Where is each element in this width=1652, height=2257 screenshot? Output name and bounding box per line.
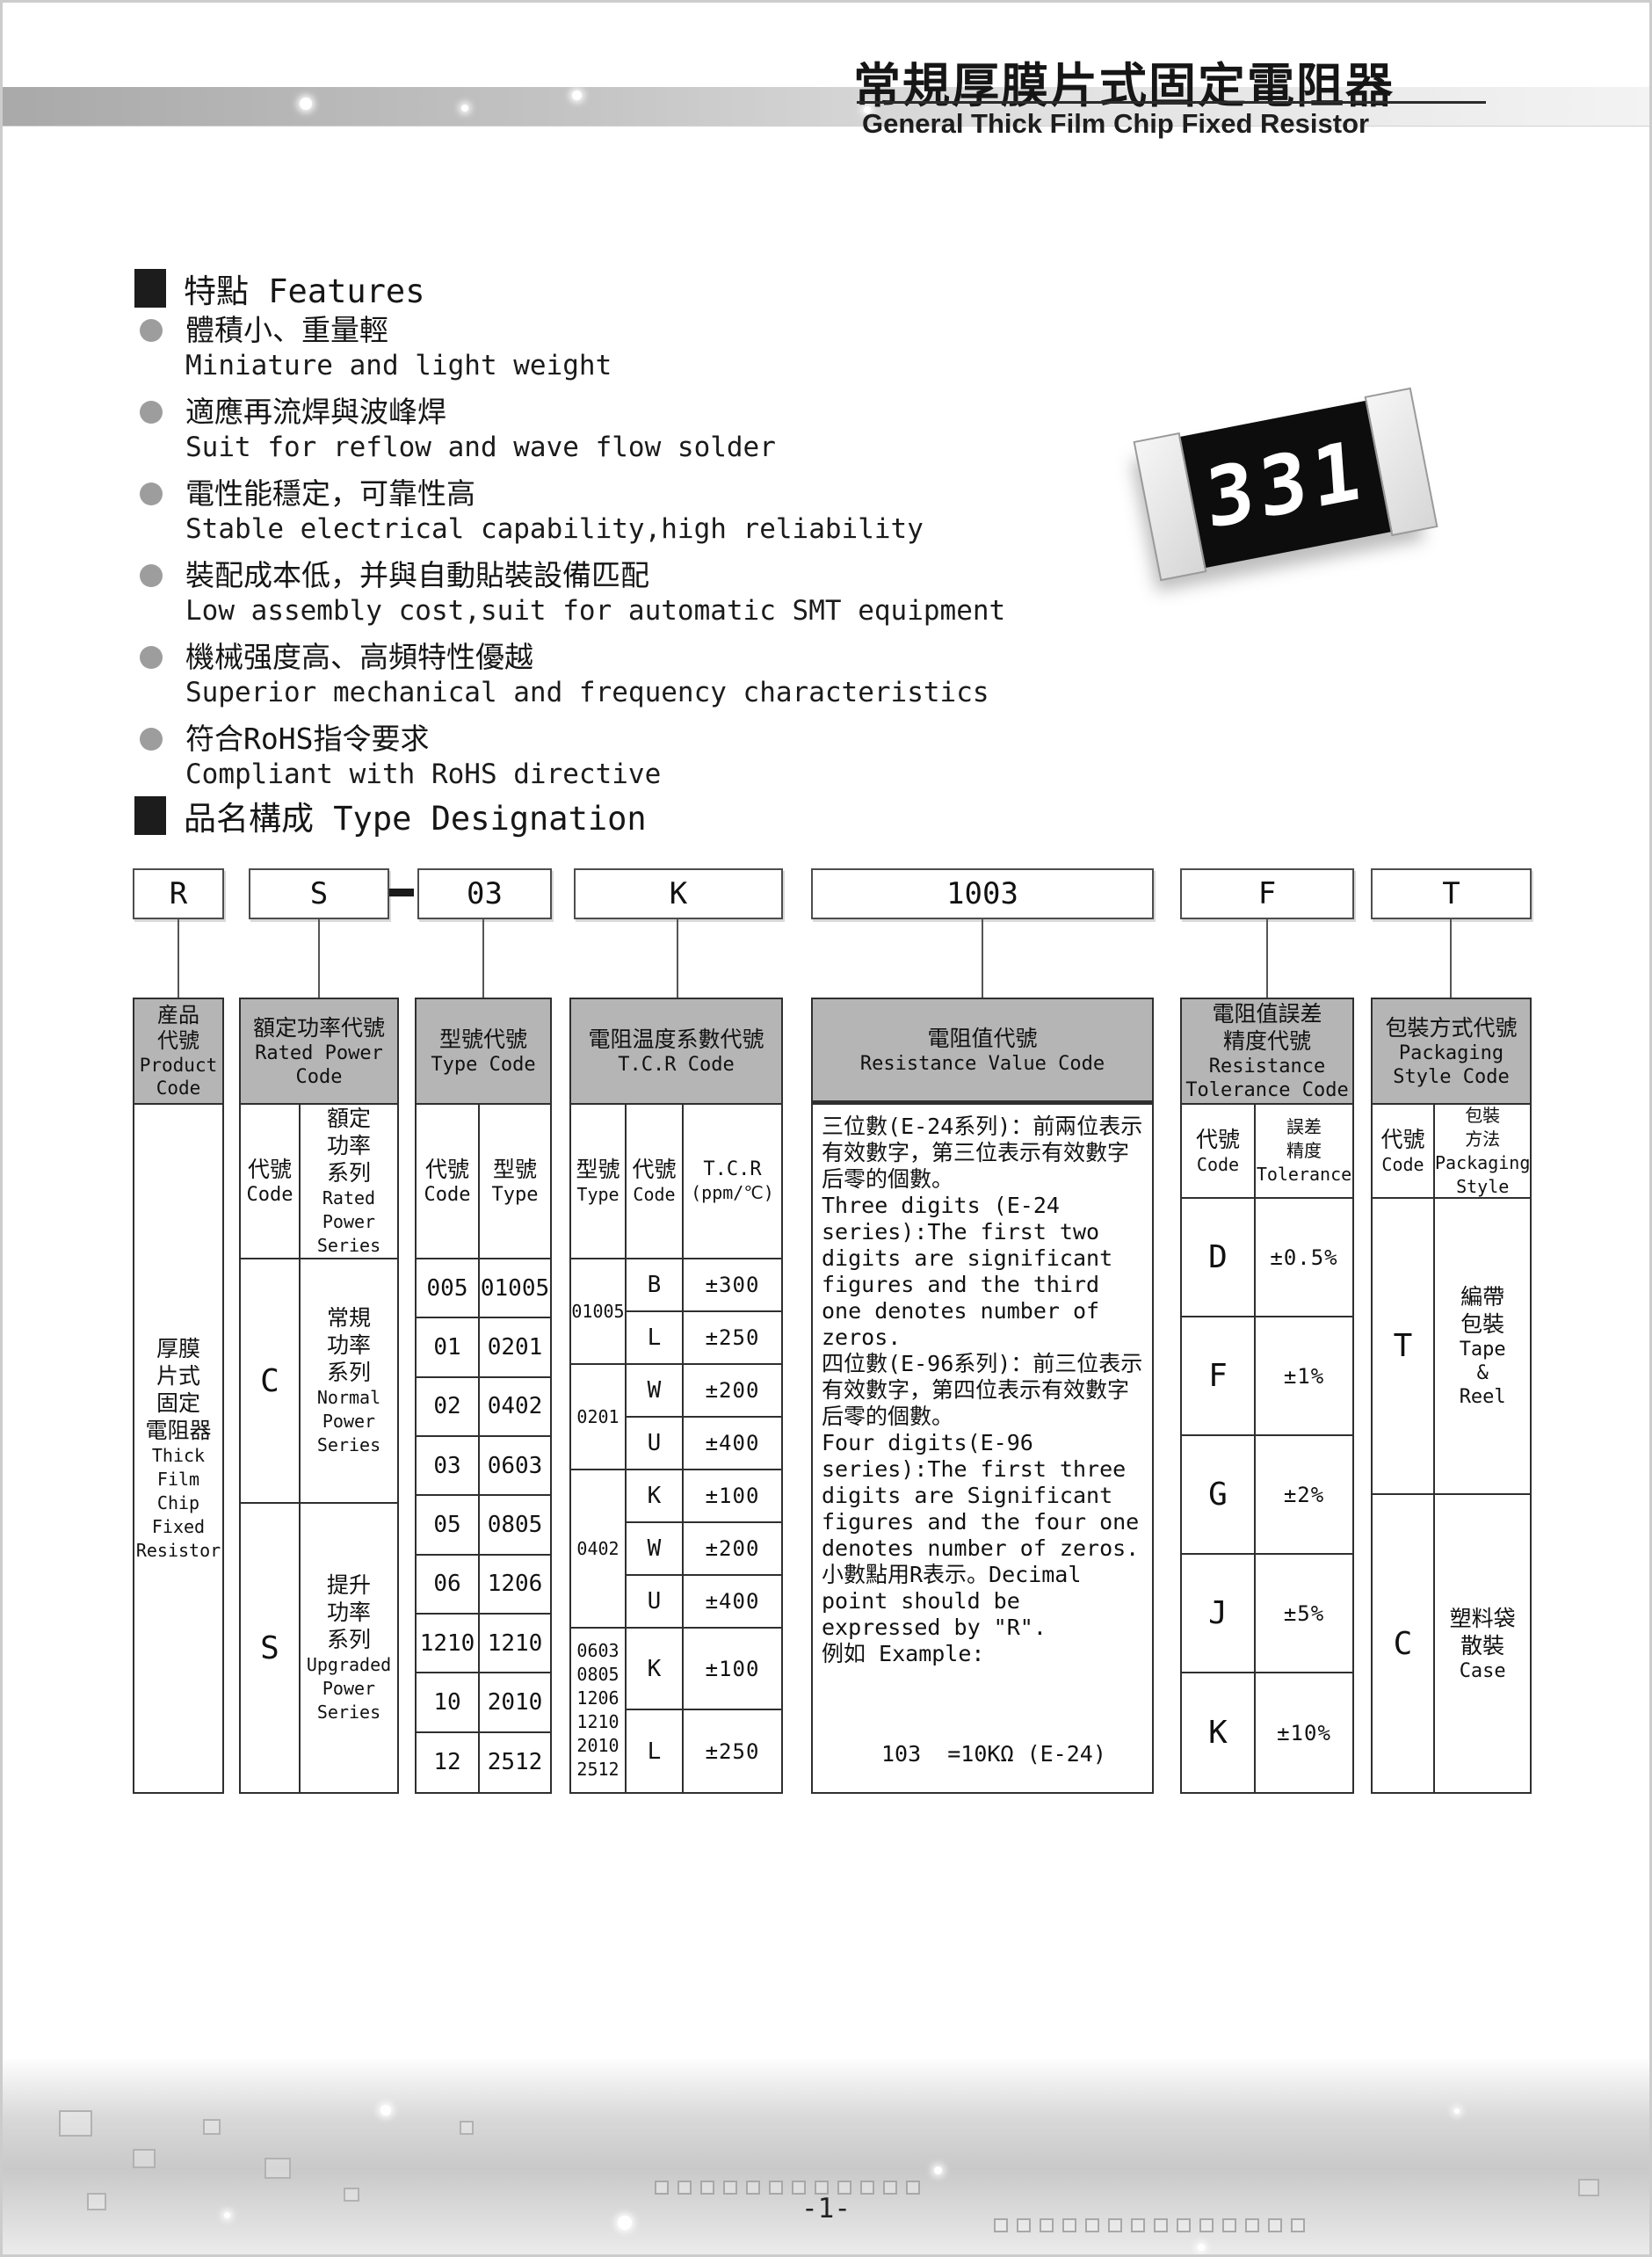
code-box-packaging: T (1371, 868, 1532, 919)
tcr-value-cell: ±400 (684, 1418, 781, 1470)
tcr-header: 電阻温度系數代號 T.C.R Code (571, 999, 781, 1105)
subheader-style: 包裝 方法 Packaging Style (1435, 1105, 1530, 1199)
value-paragraph: Four digits(E-96 series):The first three… (822, 1430, 1143, 1562)
datasheet-page: 常規厚膜片式固定電阻器 General Thick Film Chip Fixe… (0, 0, 1652, 2257)
value-paragraph: Three digits (E-24 series):The first two… (822, 1193, 1143, 1351)
header-line: Packaging (1399, 1041, 1503, 1065)
tcr-code-cell: K (627, 1470, 684, 1523)
feature-zh: 裝配成本低，并與自動貼裝設備匹配 (185, 557, 1154, 593)
cell-line: Code (1197, 1153, 1239, 1177)
cell-line: 0603 (576, 1639, 619, 1663)
page-subtitle: General Thick Film Chip Fixed Resistor (862, 108, 1369, 140)
tolerance-code-cell: D (1182, 1199, 1256, 1317)
cell-line: Thick (152, 1444, 205, 1468)
cell-line: 提升 (327, 1571, 371, 1599)
tcr-grid: 型號 Type 代號 Code T.C.R (ppm/℃) 01005 B ±3… (571, 1105, 781, 1792)
connector-line (1450, 919, 1452, 998)
cell-line: Type (576, 1183, 619, 1207)
type-size-cell: 0603 (480, 1437, 550, 1496)
tcr-value-cell: ±250 (684, 1312, 781, 1365)
tcr-value-cell: ±100 (684, 1470, 781, 1523)
resistor-photo: 331 (1141, 381, 1431, 591)
header-line: 電阻温度系數代號 (588, 1026, 764, 1053)
chip-body: 331 (1139, 393, 1431, 576)
features-heading: 特點 Features (134, 265, 424, 312)
bullet-icon (140, 728, 163, 751)
type-size-cell: 1210 (480, 1615, 550, 1673)
connector-line (318, 919, 320, 998)
features-list: 體積小、重量輕 Miniature and light weight 適應再流焊… (134, 312, 1154, 802)
sparkle-dot (461, 105, 468, 112)
cell-line: Series (317, 1433, 380, 1457)
cell-line: 代號 (425, 1156, 469, 1183)
table-column-tcr: 電阻温度系數代號 T.C.R Code 型號 Type 代號 Code T.C.… (569, 998, 783, 1794)
tolerance-value-cell: ±0.5% (1256, 1199, 1352, 1317)
tcr-value-cell: ±250 (684, 1710, 781, 1792)
chip-end-cap (1365, 388, 1438, 536)
sparkle-dot (1454, 2108, 1460, 2114)
value-paragraph: 小數點用R表示。Decimal point should be expresse… (822, 1562, 1143, 1641)
feature-en: Superior mechanical and frequency charac… (185, 675, 1154, 710)
cell-line: 系列 (327, 1626, 371, 1653)
cell-line: Series (317, 1234, 380, 1258)
features-heading-label: 特點 Features (184, 265, 424, 312)
cell-line: 功率 (327, 1332, 371, 1359)
feature-zh: 電性能穩定，可靠性高 (185, 475, 1154, 512)
type-code-cell: 005 (417, 1259, 480, 1318)
rated-power-header: 額定功率代號 Rated Power Code (241, 999, 397, 1105)
subheader-code: 代號 Code (1373, 1105, 1435, 1199)
cell-line: Fixed (152, 1515, 205, 1539)
subheader-type: 型號 Type (480, 1105, 550, 1259)
cell-line: (ppm/℃) (691, 1181, 774, 1205)
subheader-series: 額定 功率 系列 Rated Power Series (301, 1105, 397, 1259)
cell-line: Power (322, 1677, 375, 1701)
header-line: Code (156, 1077, 201, 1099)
feature-en: Low assembly cost,suit for automatic SMT… (185, 593, 1154, 628)
cell-line: Code (424, 1183, 471, 1207)
feature-zh: 機械强度高、高頻特性優越 (185, 639, 1154, 675)
tcr-type-group: 01005 (571, 1259, 627, 1365)
feature-en: Miniature and light weight (185, 348, 1154, 383)
tolerance-value-cell: ±5% (1256, 1555, 1352, 1673)
decor-rect (460, 2121, 474, 2135)
cell-line: 2010 (576, 1734, 619, 1758)
chip-end-cap (1134, 432, 1207, 581)
rated-power-grid: 代號 Code 額定 功率 系列 Rated Power Series C 常規… (241, 1105, 397, 1792)
type-code-cell: 10 (417, 1673, 480, 1732)
cell-line: 包裝 (1465, 1104, 1500, 1128)
code-box-product: R (133, 868, 224, 919)
cell-line: Style (1456, 1175, 1509, 1199)
type-size-cell: 01005 (480, 1259, 550, 1318)
cell-line: 代號 (632, 1156, 676, 1183)
header-line: Product (140, 1054, 218, 1077)
feature-en: Stable electrical capability,high reliab… (185, 512, 1154, 547)
cell-line: 1210 (576, 1710, 619, 1734)
tcr-code-cell: U (627, 1576, 684, 1629)
cell-line: Series (317, 1701, 380, 1724)
type-size-cell: 2010 (480, 1673, 550, 1732)
connector-line (1266, 919, 1268, 998)
header-line: 産品 (157, 1003, 199, 1028)
cell-line: Tolerance (1257, 1163, 1351, 1187)
cell-line: & (1477, 1361, 1489, 1385)
footer-gradient-band (3, 2059, 1649, 2257)
type-code-cell: 03 (417, 1437, 480, 1496)
cell-line: 代號 (1196, 1126, 1240, 1153)
cell-line: Chip (157, 1491, 199, 1515)
header-line: 額定功率代號 (253, 1014, 385, 1041)
cell-line: Rated (322, 1187, 375, 1210)
type-header: 型號代號 Type Code (417, 999, 550, 1105)
code-box-power: S (249, 868, 389, 919)
decor-rect (264, 2158, 291, 2179)
subheader-type: 型號 Type (571, 1105, 627, 1259)
cell-line: Resistor (136, 1539, 221, 1563)
section-square-icon (134, 796, 166, 835)
subheader-tcr: T.C.R (ppm/℃) (684, 1105, 781, 1259)
type-code-cell: 06 (417, 1556, 480, 1615)
decor-rect (203, 2119, 221, 2135)
resistor-marking: 331 (1203, 422, 1368, 548)
tolerance-header: 電阻值誤差 精度代號 Resistance Tolerance Code (1182, 999, 1352, 1105)
value-example-line: 103 =10KΩ (E-24) (881, 1739, 1143, 1768)
tcr-code-cell: U (627, 1418, 684, 1470)
tcr-value-cell: ±400 (684, 1576, 781, 1629)
power-code-cell: C (241, 1259, 301, 1504)
tcr-value-cell: ±200 (684, 1365, 781, 1418)
cell-line: 誤差 (1286, 1115, 1322, 1139)
cell-line: 散裝 (1460, 1632, 1504, 1659)
sparkle-dot (934, 2166, 942, 2174)
tolerance-code-cell: G (1182, 1436, 1256, 1555)
power-series-cell: 常規 功率 系列 Normal Power Series (301, 1259, 397, 1504)
feature-item: 體積小、重量輕 Miniature and light weight (134, 312, 1154, 383)
header-line: Type Code (431, 1053, 535, 1077)
subheader-tolerance: 誤差 精度 Tolerance (1256, 1105, 1352, 1199)
value-examples: 103 =10KΩ (E-24) 1003=100KΩ(E-96) 1R0 =1… (822, 1681, 1143, 1788)
cell-line: 常規 (327, 1304, 371, 1332)
tcr-code-cell: W (627, 1365, 684, 1418)
type-size-cell: 2512 (480, 1733, 550, 1792)
cell-line: 1206 (576, 1687, 619, 1710)
table-column-product: 産品 代號 Product Code 厚膜 片式 固定 電阻器 Thick Fi… (133, 998, 224, 1794)
cell-line: 厚膜 (156, 1335, 200, 1362)
value-paragraph: 三位數(E-24系列)：前兩位表示有效數字，第三位表示有效數字后零的個數。 (822, 1114, 1143, 1193)
feature-zh: 適應再流焊與波峰焊 (185, 394, 1154, 430)
tolerance-value-cell: ±10% (1256, 1673, 1352, 1792)
feature-zh: 體積小、重量輕 (185, 312, 1154, 348)
cell-line: Case (1460, 1659, 1506, 1683)
tcr-type-group: 0402 (571, 1470, 627, 1629)
type-size-cell: 1206 (480, 1556, 550, 1615)
tcr-code-cell: L (627, 1710, 684, 1792)
cell-line: 塑料袋 (1450, 1605, 1516, 1632)
packaging-style-cell: 塑料袋 散裝 Case (1435, 1495, 1530, 1792)
cell-line: 電阻器 (145, 1417, 211, 1444)
feature-en: Suit for reflow and wave flow solder (185, 430, 1154, 465)
tcr-code-cell: L (627, 1312, 684, 1365)
cell-line: 片式 (156, 1362, 200, 1390)
title-divider (857, 101, 1486, 104)
feature-item: 適應再流焊與波峰焊 Suit for reflow and wave flow … (134, 394, 1154, 465)
cell-line: 系列 (327, 1159, 371, 1187)
tolerance-code-cell: K (1182, 1673, 1256, 1792)
cell-line: Tape (1460, 1338, 1506, 1361)
header-line: 代號 (157, 1028, 199, 1054)
cell-line: Type (492, 1183, 539, 1207)
tcr-code-cell: K (627, 1629, 684, 1710)
type-size-cell: 0201 (480, 1318, 550, 1377)
code-box-tolerance: F (1180, 868, 1354, 919)
page-number: -1- (3, 2193, 1649, 2224)
code-box-type: 03 (417, 868, 552, 919)
cell-line: 功率 (327, 1599, 371, 1626)
cell-line: 0805 (576, 1663, 619, 1687)
header-line: 型號代號 (439, 1026, 527, 1053)
table-column-resistance-value: 電阻值代號 Resistance Value Code 三位數(E-24系列)：… (811, 998, 1154, 1794)
packaging-style-cell: 編帶 包裝 Tape & Reel (1435, 1199, 1530, 1495)
code-box-value: 1003 (811, 868, 1154, 919)
cell-line: 編帶 (1460, 1283, 1504, 1310)
cell-line: Power (322, 1410, 375, 1433)
section-square-icon (134, 269, 166, 308)
cell-line: Power (322, 1210, 375, 1234)
cell-line: T.C.R (703, 1158, 761, 1181)
power-code-cell: S (241, 1504, 301, 1792)
cell-line: 代號 (1380, 1126, 1424, 1153)
tolerance-code-cell: J (1182, 1555, 1256, 1673)
resistance-value-header: 電阻值代號 Resistance Value Code (813, 999, 1152, 1105)
header-line: Rated Power (255, 1041, 383, 1065)
cell-line: Film (157, 1468, 199, 1491)
cell-line: 額定 (327, 1105, 371, 1132)
connector-line (677, 919, 678, 998)
type-designation-heading: 品名構成 Type Designation (134, 792, 647, 839)
bullet-icon (140, 564, 163, 587)
resistance-value-body: 三位數(E-24系列)：前兩位表示有效數字，第三位表示有效數字后零的個數。 Th… (813, 1105, 1152, 1788)
feature-zh: 符合RoHS指令要求 (185, 721, 1154, 757)
header-line: Code (296, 1065, 343, 1089)
table-column-tolerance: 電阻值誤差 精度代號 Resistance Tolerance Code 代號 … (1180, 998, 1354, 1794)
type-code-cell: 02 (417, 1378, 480, 1437)
tolerance-value-cell: ±2% (1256, 1436, 1352, 1555)
cell-line: 型號 (493, 1156, 537, 1183)
type-grid: 代號 Code 型號 Type 005 01005 01 0201 02 040… (417, 1105, 550, 1792)
cell-line: Upgraded (307, 1653, 391, 1677)
header-line: 電阻值代號 (927, 1025, 1037, 1052)
type-code-cell: 01 (417, 1318, 480, 1377)
header-line: T.C.R Code (618, 1053, 734, 1077)
cell-line: 固定 (156, 1390, 200, 1417)
header-line: 電阻值誤差 (1212, 1000, 1322, 1027)
type-code-cell: 1210 (417, 1615, 480, 1673)
feature-en: Compliant with RoHS directive (185, 757, 1154, 792)
header-line: 精度代號 (1223, 1027, 1311, 1055)
value-paragraph: 四位數(E-96系列)：前三位表示有效數字，第四位表示有效數字后零的個數。 (822, 1351, 1143, 1430)
tcr-code-cell: B (627, 1259, 684, 1312)
table-column-rated-power: 額定功率代號 Rated Power Code 代號 Code 額定 功率 系列… (239, 998, 399, 1794)
decor-rect (133, 2149, 156, 2168)
connector-line (482, 919, 484, 998)
tolerance-code-cell: F (1182, 1317, 1256, 1436)
tolerance-grid: 代號 Code 誤差 精度 Tolerance D ±0.5% F ±1% G … (1182, 1105, 1352, 1792)
cell-line: 系列 (327, 1359, 371, 1386)
packaging-header: 包裝方式代號 Packaging Style Code (1373, 999, 1530, 1105)
packaging-code-cell: T (1373, 1199, 1435, 1495)
packaging-code-cell: C (1373, 1495, 1435, 1792)
cell-line: Normal (317, 1386, 380, 1410)
tcr-value-cell: ±200 (684, 1523, 781, 1576)
header-line: 包裝方式代號 (1385, 1014, 1517, 1041)
sparkle-dot (300, 98, 312, 110)
tcr-value-cell: ±300 (684, 1259, 781, 1312)
code-box-tcr: K (574, 868, 783, 919)
value-paragraph: 例如 Example: (822, 1641, 1143, 1667)
type-size-cell: 0805 (480, 1496, 550, 1555)
feature-item: 機械强度高、高頻特性優越 Superior mechanical and fre… (134, 639, 1154, 710)
header-line: Tolerance Code (1185, 1078, 1348, 1102)
connector-line (178, 919, 179, 998)
header-line: Resistance (1209, 1055, 1325, 1078)
tcr-type-group: 0201 (571, 1365, 627, 1470)
subheader-code: 代號 Code (1182, 1105, 1256, 1199)
table-column-type: 型號代號 Type Code 代號 Code 型號 Type 005 01005… (415, 998, 552, 1794)
type-size-cell: 0402 (480, 1378, 550, 1437)
header-gradient-band (3, 87, 1649, 127)
tcr-value-cell: ±100 (684, 1629, 781, 1710)
cell-line: 精度 (1286, 1139, 1322, 1163)
subheader-code: 代號 Code (417, 1105, 480, 1259)
product-body-cell: 厚膜 片式 固定 電阻器 Thick Film Chip Fixed Resis… (134, 1105, 222, 1792)
connector-line (982, 919, 983, 998)
tolerance-value-cell: ±1% (1256, 1317, 1352, 1436)
decor-rect (59, 2110, 92, 2137)
type-code-cell: 12 (417, 1733, 480, 1792)
tcr-type-group: 0603 0805 1206 1210 2010 2512 (571, 1629, 627, 1792)
cell-line: 2512 (576, 1758, 619, 1782)
cell-line: 包裝 (1460, 1310, 1504, 1338)
power-series-cell: 提升 功率 系列 Upgraded Power Series (301, 1504, 397, 1792)
cell-line: Code (1381, 1153, 1424, 1177)
cell-line: Code (633, 1183, 675, 1207)
dash-separator (389, 889, 414, 896)
bullet-icon (140, 319, 163, 342)
sparkle-dot (572, 91, 582, 100)
subheader-code: 代號 Code (627, 1105, 684, 1259)
cell-line: 方法 (1465, 1128, 1500, 1151)
cell-line: Reel (1460, 1385, 1506, 1409)
cell-line: 型號 (576, 1156, 619, 1183)
page-title: 常規厚膜片式固定電阻器 (853, 47, 1395, 116)
cell-line: 代號 (248, 1156, 292, 1183)
cell-line: Code (247, 1183, 293, 1207)
feature-item: 符合RoHS指令要求 Compliant with RoHS directive (134, 721, 1154, 792)
sparkle-dot (1198, 2244, 1205, 2251)
cell-line: Packaging (1435, 1151, 1530, 1175)
sparkle-dot (380, 2105, 391, 2115)
bullet-icon (140, 401, 163, 424)
bullet-icon (140, 646, 163, 669)
type-code-cell: 05 (417, 1496, 480, 1555)
header-line: Style Code (1393, 1065, 1509, 1089)
table-column-packaging: 包裝方式代號 Packaging Style Code 代號 Code 包裝 方… (1371, 998, 1532, 1794)
tcr-code-cell: W (627, 1523, 684, 1576)
product-header: 産品 代號 Product Code (134, 999, 222, 1105)
feature-item: 裝配成本低，并與自動貼裝設備匹配 Low assembly cost,suit … (134, 557, 1154, 628)
type-designation-heading-label: 品名構成 Type Designation (184, 792, 647, 839)
header-line: Resistance Value Code (860, 1052, 1105, 1076)
feature-item: 電性能穩定，可靠性高 Stable electrical capability,… (134, 475, 1154, 547)
packaging-grid: 代號 Code 包裝 方法 Packaging Style T 編帶 包裝 Ta… (1373, 1105, 1530, 1792)
cell-line: 功率 (327, 1132, 371, 1159)
subheader-code: 代號 Code (241, 1105, 301, 1259)
bullet-icon (140, 483, 163, 505)
